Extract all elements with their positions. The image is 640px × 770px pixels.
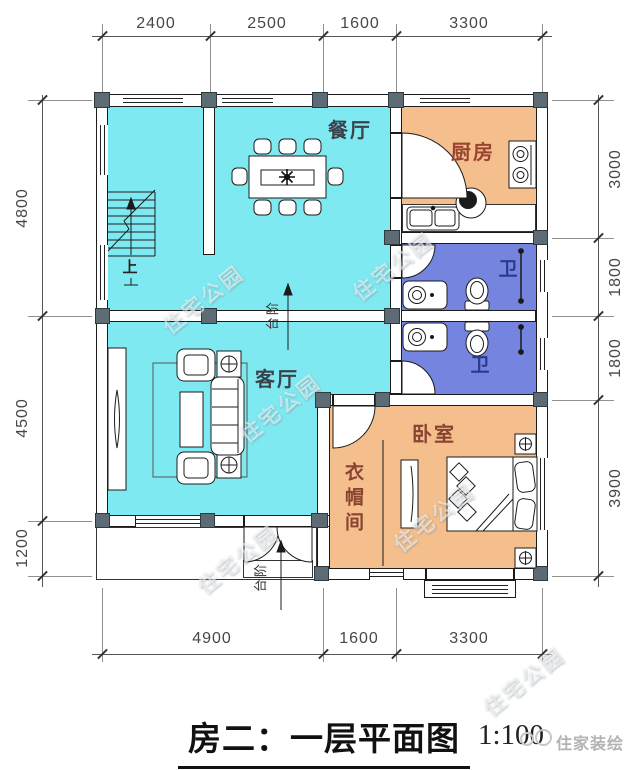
brand-mascot-icon xyxy=(535,729,552,746)
bedroom-door-arc xyxy=(333,406,375,448)
ext-line xyxy=(552,576,614,577)
ext-line xyxy=(552,400,614,401)
dim-left-1: 4800 xyxy=(14,168,32,248)
dim-bottom-3: 3300 xyxy=(429,630,509,648)
dim-right-4: 3900 xyxy=(607,448,625,528)
brand-mascot-icon xyxy=(520,732,534,746)
ext-line xyxy=(28,316,92,317)
dim-top-4: 3300 xyxy=(429,15,509,33)
brand-watermark: 住家装绘 xyxy=(520,726,640,756)
ext-line xyxy=(28,576,92,577)
room-label-dining: 餐厅 xyxy=(320,120,380,142)
dim-top-3: 1600 xyxy=(320,15,400,33)
room-label-bath-lower: 卫 xyxy=(468,356,494,377)
dining-table-set xyxy=(232,139,343,215)
room-label-bedroom: 卧室 xyxy=(404,424,464,446)
dim-right-2: 1800 xyxy=(607,237,625,317)
floorplan-canvas: 餐厅 厨房 卫 卫 客厅 卧室 衣帽间 上 台阶 台阶 xyxy=(0,0,640,770)
dim-top-1: 2400 xyxy=(116,15,196,33)
dim-left-2: 4500 xyxy=(14,378,32,458)
bath-lower-fixtures xyxy=(403,322,523,356)
ext-line xyxy=(552,100,614,101)
ext-line xyxy=(28,100,92,101)
bath-lower-door-arc xyxy=(402,361,435,394)
brand-name: 住家装绘 xyxy=(556,730,624,754)
room-label-bath-upper: 卫 xyxy=(496,260,522,281)
living-room-set xyxy=(108,348,247,490)
steps-label-mid: 台阶 xyxy=(266,287,280,343)
dim-right-3: 1800 xyxy=(607,318,625,398)
dim-line-left xyxy=(42,95,43,587)
ext-line xyxy=(28,521,92,522)
dim-bottom-1: 4900 xyxy=(172,630,252,648)
dim-bottom-2: 1600 xyxy=(319,630,399,648)
ext-line xyxy=(552,238,614,239)
dim-right-1: 3000 xyxy=(607,129,625,209)
ext-line xyxy=(552,316,614,317)
room-label-cloakroom: 衣帽间 xyxy=(338,445,362,553)
stairs-up-label: 上 xyxy=(122,260,140,277)
plan-title: 房二：一层平面图 xyxy=(178,712,470,769)
dim-line-right xyxy=(598,95,599,587)
dim-top-2: 2500 xyxy=(227,15,307,33)
dim-left-3: 1200 xyxy=(14,508,32,588)
room-label-kitchen: 厨房 xyxy=(442,142,504,164)
